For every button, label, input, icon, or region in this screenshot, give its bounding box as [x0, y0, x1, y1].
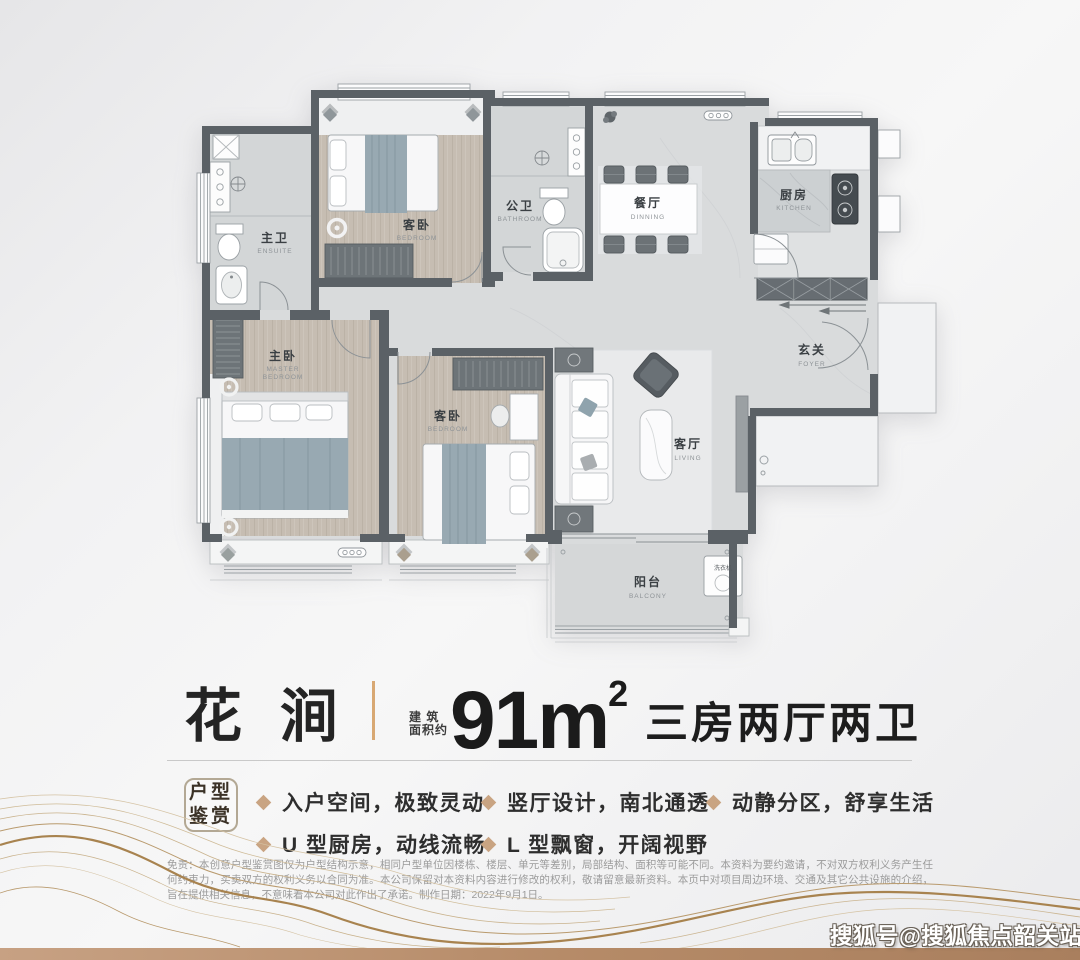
bay-windows [210, 540, 549, 580]
feature-item: U 型厨房，动线流畅 [258, 829, 486, 859]
feature-text: 竖厅设计，南北通透 [507, 792, 710, 815]
gold-divider [372, 681, 375, 740]
room-label-kitchen: 厨房 [780, 187, 808, 202]
tv-cabinet [736, 396, 748, 492]
toilet-bowl [543, 199, 565, 225]
area-caption: 建 筑面积约 [409, 711, 448, 737]
diamond-bullet-icon [706, 795, 722, 811]
coffee-table [640, 410, 672, 480]
diamond-bullet-icon [481, 837, 497, 853]
bed-head-band [319, 98, 487, 135]
area-value: 91m2 [450, 676, 628, 762]
disclaimer-text: 免责：本创意户型鉴赏图仅为户型结构示意，相同户型单位因楼栋、楼层、单元等差别，局… [167, 858, 933, 903]
toilet-tank [540, 188, 568, 198]
side-table [555, 348, 593, 372]
room-label-master: 主卧 [269, 348, 297, 363]
room-label-living-en: LIVING [674, 455, 701, 462]
washer-label: 洗衣机 [714, 564, 732, 572]
diamond-bullet-icon [256, 837, 272, 853]
chair [491, 405, 509, 427]
room-label-master-en2: BEDROOM [263, 374, 304, 381]
diamond-bullet-icon [481, 795, 497, 811]
room-label-foyer: 玄关 [798, 342, 826, 357]
stove [832, 174, 858, 224]
desk [510, 394, 538, 440]
feature-text: L 型飘窗，开阔视野 [507, 834, 708, 857]
watermark-text: 搜狐号@搜狐焦点韶关站 [830, 919, 1080, 951]
poster-page: 主卫 ENSUITE 客卧 BEDROOM 公卫 BATHROOM 餐厅 DIN… [0, 0, 1080, 960]
room-label-ensuite-en: ENSUITE [257, 248, 292, 255]
feature-item: 动静分区，舒享生活 [708, 787, 935, 817]
foyer-cabinet [757, 278, 867, 300]
toilet-tank [216, 224, 243, 234]
area-number: 91m [450, 675, 608, 766]
feature-text: 动静分区，舒享生活 [732, 792, 935, 815]
room-label-foyer-en: FOYER [798, 361, 825, 368]
room-label-balcony-en: BALCONY [629, 593, 667, 600]
layout-text: 三房两厅两卫 [645, 703, 921, 746]
feature-item: 竖厅设计，南北通透 [483, 787, 710, 817]
room-label-bedroom-mid: 客卧 [433, 408, 462, 423]
badge-line1: 户型 [189, 781, 233, 805]
floor-plan: 主卫 ENSUITE 客卧 BEDROOM 公卫 BATHROOM 餐厅 DIN… [180, 78, 940, 658]
room-label-master-en1: MASTER [266, 366, 299, 373]
room-label-bedroom-top-en: BEDROOM [397, 235, 438, 242]
feature-text: 入户空间，极致灵动 [282, 792, 485, 815]
vent-icon [704, 111, 732, 120]
blanket [222, 438, 348, 512]
area-exponent: 2 [608, 673, 628, 714]
area-caption-line2: 面积约 [409, 723, 448, 737]
feature-item: L 型飘窗，开阔视野 [483, 829, 708, 859]
toilet-bowl [218, 234, 240, 260]
room-label-bedroom-mid-en: BEDROOM [428, 426, 469, 433]
plan-name-title: 花涧 [184, 688, 376, 746]
room-label-dining-en: DINNING [631, 214, 665, 221]
room-label-dining: 餐厅 [634, 195, 662, 210]
room-label-kitchen-en: KITCHEN [776, 205, 812, 212]
cabinet [210, 162, 230, 212]
wardrobe [453, 358, 543, 390]
appreciation-badge: 户型 鉴赏 [184, 778, 238, 832]
room-label-bathroom-en: BATHROOM [497, 216, 542, 223]
room-label-living: 客厅 [673, 436, 702, 451]
diamond-bullet-icon [256, 795, 272, 811]
badge-line2: 鉴赏 [189, 805, 233, 829]
feature-text: U 型厨房，动线流畅 [282, 834, 486, 857]
feature-item: 入户空间，极致灵动 [258, 787, 485, 817]
area-caption-line1: 建 筑 [409, 710, 439, 724]
room-label-balcony: 阳台 [634, 574, 662, 589]
section-divider [167, 760, 912, 761]
side-table [555, 506, 593, 532]
blanket [365, 135, 407, 213]
room-label-bathroom: 公卫 [506, 199, 534, 213]
vent-icon [338, 548, 366, 557]
blanket [442, 444, 486, 544]
room-label-ensuite: 主卫 [261, 230, 289, 245]
room-label-bedroom-top: 客卧 [402, 217, 431, 232]
